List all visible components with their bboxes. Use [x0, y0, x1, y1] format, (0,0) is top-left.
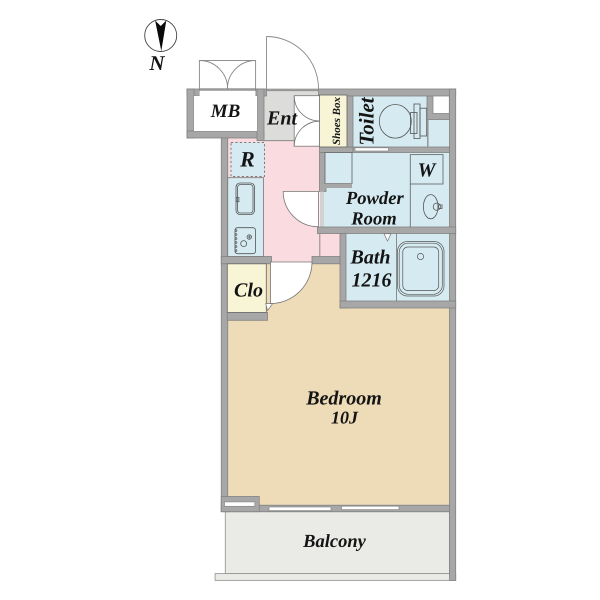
svg-text:1216: 1216 — [352, 270, 392, 292]
svg-text:MB: MB — [210, 101, 241, 122]
svg-text:Toilet: Toilet — [355, 96, 379, 145]
svg-text:Bath: Bath — [349, 247, 390, 269]
svg-text:W: W — [418, 160, 437, 182]
svg-text:Shoes Box: Shoes Box — [331, 97, 343, 145]
svg-text:Ent: Ent — [266, 108, 298, 130]
svg-text:Room: Room — [350, 208, 396, 229]
svg-text:N: N — [148, 51, 165, 75]
svg-text:R: R — [239, 147, 255, 172]
svg-text:Powder: Powder — [345, 188, 405, 209]
svg-text:Clo: Clo — [234, 280, 263, 302]
svg-text:Balcony: Balcony — [302, 532, 366, 552]
svg-text:10J: 10J — [331, 408, 359, 428]
svg-text:Bedroom: Bedroom — [305, 388, 382, 410]
